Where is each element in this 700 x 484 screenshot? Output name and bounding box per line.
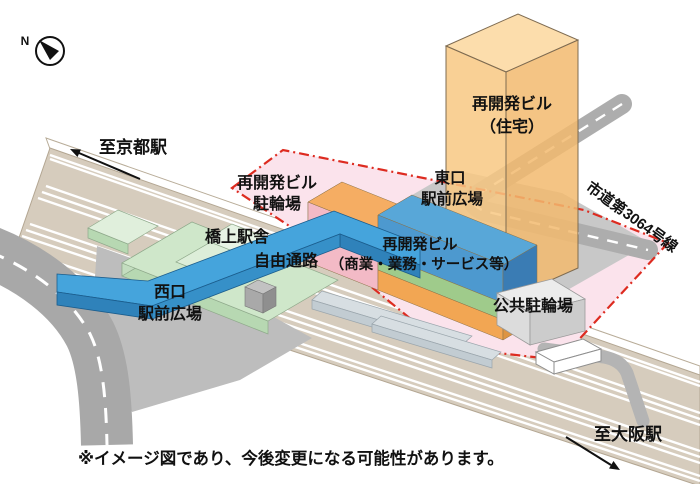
- tower-label-line2: （住宅）: [480, 117, 544, 136]
- disclaimer-note: ※イメージ図であり、今後変更になる可能性があります。: [78, 448, 504, 468]
- to-osaka-label: 至大阪駅: [594, 424, 663, 444]
- east-plaza-label-line1: 東口: [434, 168, 465, 187]
- commercial-label-line1: 再開発ビル: [382, 235, 457, 253]
- tower-label-line1: 再開発ビル: [472, 94, 552, 113]
- to-kyoto-label: 至京都駅: [99, 137, 168, 157]
- west-plaza-label-line1: 西口: [154, 283, 186, 301]
- station-redevelopment-diagram: N 至京都駅 至大阪駅 再開発ビル 駐輪場 再開発ビル （住宅） 東口 駅前広場…: [0, 0, 700, 484]
- elevator-box: [245, 280, 276, 313]
- compass-icon: N: [21, 34, 64, 65]
- commercial-label-line2: （商業・業務・サービス等）: [330, 255, 519, 273]
- west-plaza-label-line2: 駅前広場: [137, 304, 202, 323]
- bicycle-zone-label-line2: 駐輪場: [253, 194, 301, 213]
- compass-n-label: N: [21, 34, 30, 48]
- bridge-station-label: 橋上駅舎: [205, 227, 270, 246]
- free-passage-label: 自由通路: [254, 251, 319, 270]
- diagram-canvas: N 至京都駅 至大阪駅 再開発ビル 駐輪場 再開発ビル （住宅） 東口 駅前広場…: [0, 0, 700, 484]
- public-bicycle-label: 公共駐輪場: [493, 296, 573, 315]
- bicycle-zone-label-line1: 再開発ビル: [237, 173, 317, 192]
- east-plaza-label-line2: 駅前広場: [420, 189, 484, 208]
